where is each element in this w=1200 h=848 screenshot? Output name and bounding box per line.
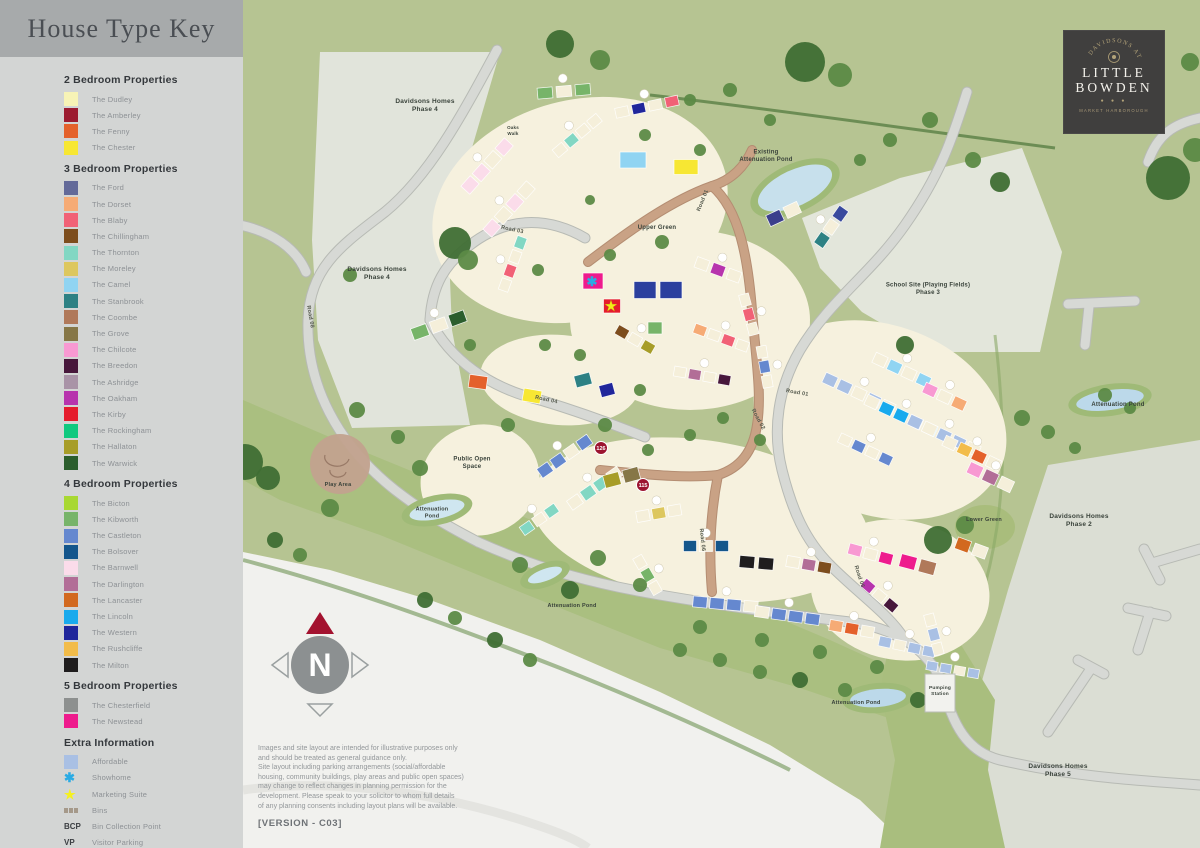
disclaimer-line: Images and site layout are intended for … [258, 744, 508, 754]
legend-item: The Chillingham [64, 228, 243, 244]
legend-item: Affordable [64, 754, 243, 770]
legend-item: The Dudley [64, 91, 243, 107]
disclaimer-line: of any planning consents including layou… [258, 802, 508, 812]
panel-title: House Type Key [28, 14, 216, 44]
legend-item: The Amberley [64, 107, 243, 123]
legend-item-label: The Dudley [92, 95, 132, 104]
svg-text:Play Area: Play Area [325, 482, 352, 488]
svg-text:Lower Green: Lower Green [966, 517, 1002, 523]
legend-item-label: The Hallaton [92, 442, 137, 451]
legend-item: The Fenny [64, 123, 243, 139]
color-swatch [64, 610, 92, 624]
legend-item: The Warwick [64, 455, 243, 471]
legend-item-label: The Kibworth [92, 515, 139, 524]
svg-text:Attenuation Pond: Attenuation Pond [1091, 402, 1144, 408]
legend-item: The Oakham [64, 390, 243, 406]
legend-item: The Milton [64, 657, 243, 673]
color-swatch [64, 512, 92, 526]
house-type-legend: 2 Bedroom PropertiesThe DudleyThe Amberl… [0, 57, 243, 848]
legend-section-heading: 5 Bedroom Properties [64, 680, 243, 692]
legend-item: The Barnwell [64, 560, 243, 576]
color-swatch [64, 359, 92, 373]
legend-section-heading: Extra Information [64, 737, 243, 749]
color-swatch [64, 375, 92, 389]
legend-item-label: The Kirby [92, 410, 126, 419]
legend-item: The Newstead [64, 713, 243, 729]
legend-item-label: The Castleton [92, 531, 141, 540]
legend-item: The Kibworth [64, 511, 243, 527]
disclaimer-line: development. Please speak to your solici… [258, 792, 508, 802]
legend-item-label: The Newstead [92, 717, 143, 726]
color-swatch [64, 246, 92, 260]
color-swatch [64, 658, 92, 672]
legend-item-label: The Moreley [92, 264, 136, 273]
legend-item-label: The Bolsover [92, 547, 139, 556]
color-swatch [64, 197, 92, 211]
legend-item-label: The Breedon [92, 361, 138, 370]
color-swatch [64, 141, 92, 155]
color-swatch [64, 124, 92, 138]
disclaimer-line: and should be treated as general guidanc… [258, 754, 508, 764]
color-swatch [64, 343, 92, 357]
color-swatch [64, 456, 92, 470]
legend-item-label: The Dorset [92, 200, 131, 209]
legend-item-label: The Camel [92, 280, 130, 289]
legend-item-label: Affordable [92, 757, 128, 766]
color-swatch [64, 698, 92, 712]
legend-item-label: The Amberley [92, 111, 141, 120]
color-swatch [64, 755, 92, 769]
color-swatch [64, 213, 92, 227]
color-swatch [64, 108, 92, 122]
logo-crest: DAVIDSONS AT [1065, 31, 1163, 65]
legend-item-label: The Western [92, 628, 137, 637]
legend-item-label: The Ford [92, 183, 124, 192]
legend-item-label: The Warwick [92, 459, 137, 468]
legend-item: The Castleton [64, 528, 243, 544]
disclaimer-line: may change to reflect changes in plannin… [258, 782, 508, 792]
abbreviation-label: VP [64, 838, 92, 847]
svg-text:Attenuation Pond: Attenuation Pond [831, 700, 880, 706]
legend-item-label: The Grove [92, 329, 129, 338]
legend-item-label: The Blaby [92, 216, 128, 225]
legend-item: The Rockingham [64, 423, 243, 439]
legend-item: ✱Showhome [64, 770, 243, 786]
legend-item: The Breedon [64, 358, 243, 374]
legend-item: The Thornton [64, 245, 243, 261]
color-swatch [64, 714, 92, 728]
legend-item: Bins [64, 802, 243, 818]
svg-text:Attenuation Pond: Attenuation Pond [547, 603, 596, 609]
svg-text:115: 115 [639, 483, 648, 489]
legend-item-label: The Rockingham [92, 426, 152, 435]
disclaimer-line: Site layout including parking arrangemen… [258, 763, 508, 773]
legend-section-heading: 4 Bedroom Properties [64, 478, 243, 490]
color-swatch [64, 278, 92, 292]
disclaimer-text: Images and site layout are intended for … [258, 744, 508, 811]
legend-item-label: Marketing Suite [92, 790, 147, 799]
svg-text:126: 126 [596, 446, 605, 452]
legend-section-heading: 3 Bedroom Properties [64, 163, 243, 175]
legend-item: BCPBin Collection Point [64, 818, 243, 834]
legend-item: The Ashridge [64, 374, 243, 390]
color-swatch [64, 294, 92, 308]
legend-item: The Chesterfield [64, 697, 243, 713]
legend-item-label: Bins [92, 806, 107, 815]
color-swatch [64, 496, 92, 510]
abbreviation-label: BCP [64, 822, 92, 831]
color-swatch [64, 424, 92, 438]
color-swatch [64, 92, 92, 106]
site-plan-page: ✱★126115Davidsons HomesPhase 4Davidsons … [0, 0, 1200, 848]
color-swatch [64, 440, 92, 454]
legend-item-label: The Milton [92, 661, 129, 670]
legend-item-label: The Oakham [92, 394, 137, 403]
legend-item-label: Showhome [92, 773, 131, 782]
legend-item: The Chilcote [64, 342, 243, 358]
color-swatch [64, 529, 92, 543]
legend-item-label: The Thornton [92, 248, 139, 257]
legend-item: The Dorset [64, 196, 243, 212]
legend-item-label: The Bicton [92, 499, 130, 508]
logo-name-line1: LITTLE [1082, 65, 1146, 80]
logo-name-line2: BOWDEN [1075, 80, 1152, 95]
legend-item-label: The Rushcliffe [92, 644, 143, 653]
legend-item: The Moreley [64, 261, 243, 277]
legend-item: The Coombe [64, 309, 243, 325]
legend-item: The Grove [64, 325, 243, 341]
color-swatch [64, 545, 92, 559]
legend-item: The Lincoln [64, 608, 243, 624]
panel-header: House Type Key [0, 0, 243, 57]
marketing-suite-star-icon: ★ [64, 788, 92, 801]
svg-text:OaksWalk: OaksWalk [507, 125, 519, 136]
svg-text:Upper Green: Upper Green [638, 225, 677, 231]
color-swatch [64, 391, 92, 405]
color-swatch [64, 181, 92, 195]
version-label: [VERSION - C03] [258, 818, 342, 829]
color-swatch [64, 577, 92, 591]
showhome-asterisk-icon: ✱ [64, 771, 92, 784]
legend-item: The Lancaster [64, 592, 243, 608]
legend-item: The Chester [64, 140, 243, 156]
bins-icon [64, 808, 92, 813]
house-type-key-panel: House Type Key 2 Bedroom PropertiesThe D… [0, 0, 243, 848]
color-swatch [64, 642, 92, 656]
legend-item-label: Bin Collection Point [92, 822, 161, 831]
svg-text:✱: ✱ [587, 274, 598, 289]
legend-item-label: The Fenny [92, 127, 130, 136]
color-swatch [64, 593, 92, 607]
legend-item: The Bolsover [64, 544, 243, 560]
development-logo: DAVIDSONS AT LITTLE BOWDEN ● ● ● MARKET … [1063, 30, 1165, 134]
legend-item: The Western [64, 625, 243, 641]
legend-item: The Rushcliffe [64, 641, 243, 657]
legend-item-label: The Lincoln [92, 612, 133, 621]
legend-item-label: The Lancaster [92, 596, 143, 605]
svg-text:★: ★ [604, 298, 617, 315]
legend-item-label: The Barnwell [92, 563, 138, 572]
legend-section-heading: 2 Bedroom Properties [64, 74, 243, 86]
legend-item-label: The Chesterfield [92, 701, 150, 710]
logo-location: MARKET HARBOROUGH [1079, 108, 1148, 113]
legend-item-label: The Ashridge [92, 378, 139, 387]
svg-text:N: N [308, 647, 331, 683]
legend-item: The Camel [64, 277, 243, 293]
legend-item: The Kirby [64, 406, 243, 422]
color-swatch [64, 327, 92, 341]
logo-dots: ● ● ● [1101, 98, 1128, 104]
disclaimer-line: housing, community buildings, play areas… [258, 773, 508, 783]
legend-item: VPVisitor Parking [64, 835, 243, 848]
color-swatch [64, 229, 92, 243]
legend-item-label: The Chester [92, 143, 135, 152]
color-swatch [64, 407, 92, 421]
legend-item: The Stanbrook [64, 293, 243, 309]
color-swatch [64, 262, 92, 276]
legend-item-label: Visitor Parking [92, 838, 143, 847]
legend-item: ★Marketing Suite [64, 786, 243, 802]
color-swatch [64, 561, 92, 575]
color-swatch [64, 626, 92, 640]
color-swatch [64, 310, 92, 324]
legend-item: The Ford [64, 180, 243, 196]
legend-item: The Darlington [64, 576, 243, 592]
legend-item: The Hallaton [64, 439, 243, 455]
legend-item-label: The Chilcote [92, 345, 137, 354]
legend-item: The Blaby [64, 212, 243, 228]
legend-item-label: The Coombe [92, 313, 137, 322]
legend-item-label: The Chillingham [92, 232, 149, 241]
legend-item-label: The Stanbrook [92, 297, 144, 306]
legend-item: The Bicton [64, 495, 243, 511]
svg-text:PumpingStation: PumpingStation [929, 685, 951, 697]
legend-item-label: The Darlington [92, 580, 144, 589]
